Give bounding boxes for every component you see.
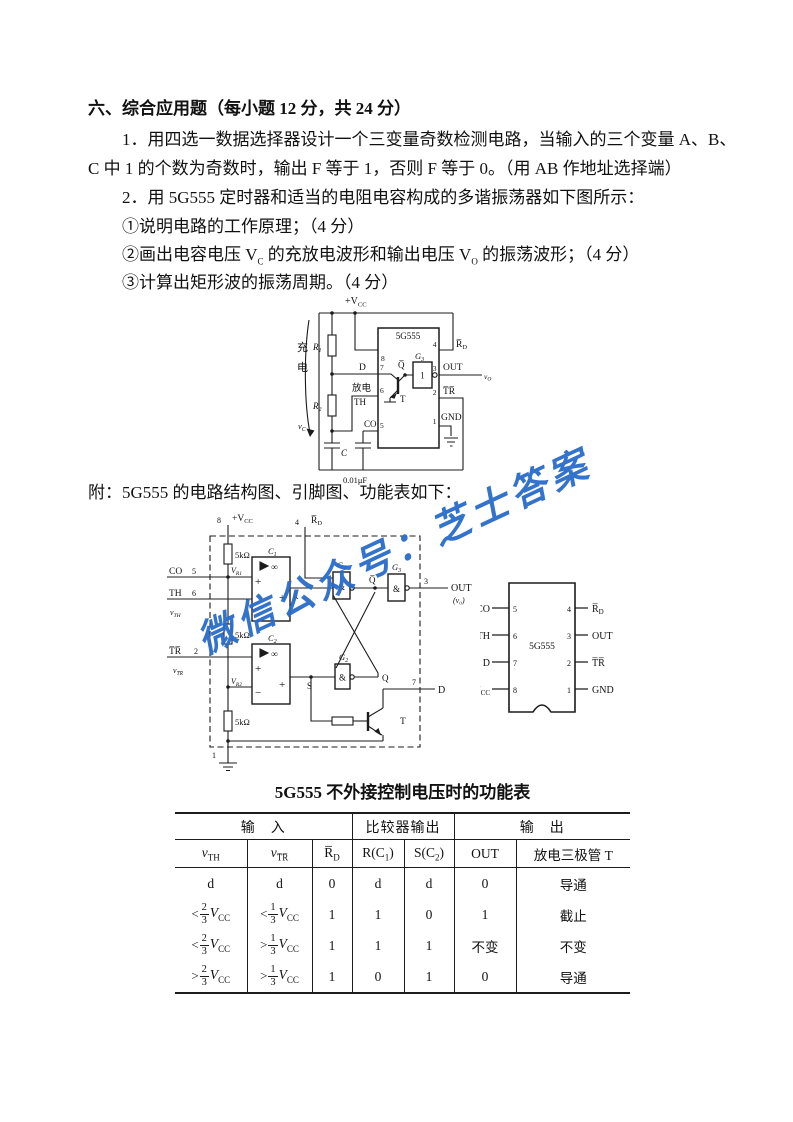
g3-and-symbol: &: [393, 584, 400, 594]
table-cell: 0: [454, 961, 516, 993]
tr-pin-label: T̅R̅: [169, 646, 182, 657]
pin7-number: 7: [513, 659, 517, 668]
c2-plus-input: +: [255, 663, 261, 675]
rd-label: R̅D: [456, 339, 467, 351]
charge-label-1: 充: [297, 340, 308, 354]
exam-page: 六、综合应用题（每小题 12 分，共 24 分） 1．用四选一数据选择器设计一个…: [0, 0, 793, 1122]
table-header-cell: OUT: [454, 840, 516, 868]
q-label: Q: [382, 673, 389, 683]
th-pin-label: TH: [480, 631, 490, 642]
function-table: 输 入比较器输出输 出vTHvT̅R̅R̅DR(C1)S(C2)OUT放电三极管…: [175, 812, 630, 994]
discharge-label: 放电: [352, 382, 372, 394]
table-cell: >23VCC: [175, 961, 247, 993]
th-pin-number: 6: [192, 589, 196, 598]
table-row: <23VCC>13VCC111不变不变: [175, 930, 630, 961]
table-cell: 0: [404, 899, 454, 930]
charge-label-2: 电: [297, 361, 308, 374]
table-cell: d: [175, 868, 247, 900]
table-cell: 1: [404, 961, 454, 993]
table-cell: 截止: [516, 899, 630, 930]
table-cell: <13VCC: [247, 899, 312, 930]
table-header-row: vTHvT̅R̅R̅DR(C1)S(C2)OUT放电三极管 T: [175, 840, 630, 868]
section-heading: 六、综合应用题（每小题 12 分，共 24 分）: [88, 94, 728, 123]
pin7-number: 7: [412, 678, 416, 687]
pin6: 6: [380, 386, 384, 395]
pin4-number: 4: [567, 605, 571, 614]
rd-label: R̅D: [311, 515, 322, 527]
g2-gate-label: G2: [339, 652, 348, 664]
r1-label: R1: [312, 342, 322, 354]
qbar-label: Q̅: [398, 360, 405, 370]
pin3-number: 3: [567, 632, 571, 641]
table-row: >23VCC>13VCC1010导通: [175, 961, 630, 993]
table-cell: <23VCC: [175, 899, 247, 930]
pin4: 4: [433, 340, 437, 349]
co-pin-number: 5: [192, 567, 196, 576]
cap-c-label: C: [341, 448, 348, 458]
table-cell: d: [247, 868, 312, 900]
g3-gate-label: G3: [415, 351, 424, 363]
tr-pin-label: T̅R̅: [592, 658, 605, 669]
tr-label: T̅R̅: [443, 386, 456, 397]
table-cell: 导通: [516, 961, 630, 993]
pin2-number: 2: [567, 659, 571, 668]
c2-plus-output: +: [279, 679, 285, 691]
table-cell: 1: [404, 930, 454, 961]
table-cell: >13VCC: [247, 961, 312, 993]
out-label: OUT: [443, 363, 463, 373]
pin1: 1: [433, 417, 437, 426]
table-cell: 0: [312, 868, 352, 900]
transistor-label: T: [400, 394, 406, 404]
vo-label: (v₀): [453, 596, 465, 605]
d-pin-label: D: [483, 658, 490, 669]
g2-and-symbol: &: [339, 673, 346, 683]
table-header-cell: 放电三极管 T: [516, 840, 630, 868]
table-cell: d: [352, 868, 404, 900]
table-cell: <23VCC: [175, 930, 247, 961]
gnd-label: GND: [441, 413, 462, 423]
pin4-number: 4: [295, 518, 299, 527]
infinity-symbol-2: ∞: [271, 650, 278, 660]
table-row: dd0dd0导通: [175, 868, 630, 900]
out-pin-label: OUT: [592, 631, 613, 642]
pin5-number: 5: [513, 605, 517, 614]
vth-label: vTH: [170, 608, 182, 619]
table-group-header-cell: 比较器输出: [352, 813, 454, 840]
table-cell: 1: [312, 961, 352, 993]
table-cell: d: [404, 868, 454, 900]
circuit1-wires: [305, 313, 482, 470]
table-cell: 导通: [516, 868, 630, 900]
g3-gate-symbol: 1: [420, 371, 425, 381]
s-node-label: S: [307, 681, 312, 691]
pin8: 8: [381, 354, 385, 363]
table-cell: 1: [454, 899, 516, 930]
table-group-header-row: 输 入比较器输出输 出: [175, 813, 630, 840]
table-row: <23VCC<13VCC1101截止: [175, 899, 630, 930]
vr2-label: VR2: [231, 677, 242, 688]
pin8-number: 8: [217, 516, 221, 525]
d-pin-label: D: [438, 685, 445, 696]
table-cell: 1: [312, 899, 352, 930]
pin-diagram-figure: 5G555 CO TH D VCC 5 6 7 8 4 3 2 1 R̅D OU…: [480, 565, 670, 725]
out-label: OUT: [451, 583, 472, 594]
table-group-header-cell: 输 出: [454, 813, 630, 840]
c2-minus-input: −: [255, 687, 261, 699]
question2: 2．用 5G555 定时器和适当的电阻电容构成的多谐振荡器如下图所示：: [88, 183, 728, 212]
table-header-cell: S(C2): [404, 840, 454, 868]
table-title: 5G555 不外接控制电压时的功能表: [175, 778, 630, 803]
table-header-cell: R(C1): [352, 840, 404, 868]
d-label: D: [359, 363, 366, 373]
appendix-line: 附：5G555 的电路结构图、引脚图、功能表如下：: [88, 478, 728, 507]
table-header-cell: vTH: [175, 840, 247, 868]
co-pin-label: CO: [480, 604, 490, 615]
table-cell: 1: [352, 930, 404, 961]
gnd-pin-label: GND: [592, 685, 614, 696]
table-cell: 0: [454, 868, 516, 900]
pin3-number: 3: [424, 577, 428, 586]
table-cell: 1: [312, 930, 352, 961]
table-group-header-cell: 输 入: [175, 813, 352, 840]
vcc-label: +VCC: [232, 514, 253, 525]
table-cell: 0: [352, 961, 404, 993]
rd-pin-label: R̅D: [592, 604, 604, 616]
r2-label: R2: [312, 401, 322, 413]
co-pin-label: CO: [169, 567, 182, 577]
table-cell: 不变: [454, 930, 516, 961]
pin8-number: 8: [513, 686, 517, 695]
pin5: 5: [380, 421, 384, 430]
resistor-5k-label-1: 5kΩ: [235, 550, 250, 560]
pin2: 2: [433, 388, 437, 397]
transistor-label: T: [400, 717, 406, 727]
question1-line2: C 中 1 的个数为奇数时，输出 F 等于 1，否则 F 等于 0。（用 AB …: [88, 154, 728, 183]
chip-name: 5G555: [396, 331, 421, 341]
table-header-cell: R̅D: [312, 840, 352, 868]
th-label: TH: [354, 397, 366, 407]
vcc-label: +VCC: [345, 296, 367, 309]
question2-sub1: ①说明电路的工作原理；（4 分）: [88, 212, 728, 241]
table-cell: >13VCC: [247, 930, 312, 961]
tr-pin-number: 2: [194, 647, 198, 656]
vr1-label: VR1: [231, 566, 242, 577]
question1-line1: 1．用四选一数据选择器设计一个三变量奇数检测电路，当输入的三个变量 A、B、: [88, 125, 728, 154]
co-label: CO: [364, 419, 377, 429]
table-cell: 1: [352, 899, 404, 930]
pin1-number: 1: [212, 751, 216, 760]
vcc-pin-label: VCC: [480, 685, 490, 697]
resistor-5k-label-3: 5kΩ: [235, 717, 250, 727]
th-pin-label: TH: [169, 589, 182, 599]
multivibrator-circuit-figure: +VCC 充 电 R1 R2 D 放电 TH CO vC C 0.01μF 5G…: [293, 290, 543, 490]
vc-label: vC: [298, 421, 307, 433]
vtr-label: vT̅R̅: [173, 666, 184, 677]
pin6-number: 6: [513, 632, 517, 641]
table-cell: 不变: [516, 930, 630, 961]
pin7: 7: [380, 363, 384, 372]
table-header-cell: vT̅R̅: [247, 840, 312, 868]
chip-name: 5G555: [529, 642, 555, 652]
vo-label: vO: [484, 372, 491, 383]
pin1-number: 1: [567, 686, 571, 695]
pin3: 3: [433, 364, 437, 373]
c1-comparator-label: C1: [268, 546, 277, 558]
